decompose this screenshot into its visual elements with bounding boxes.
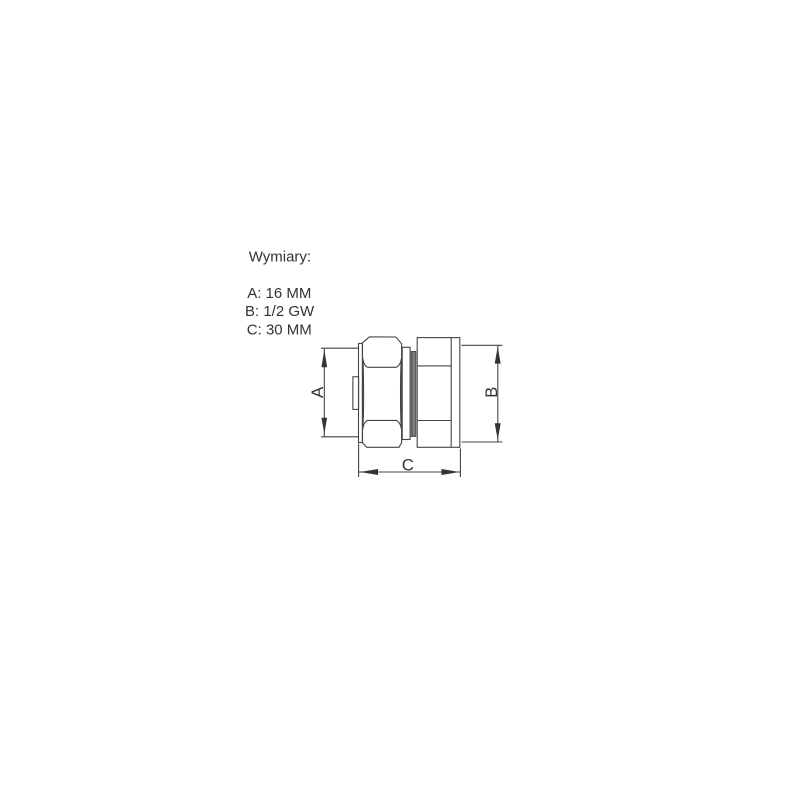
svg-text:B: 1/2 GW: B: 1/2 GW <box>245 303 315 320</box>
svg-text:A: 16 MM: A: 16 MM <box>247 285 311 302</box>
svg-text:C: C <box>402 456 414 475</box>
svg-text:B: B <box>483 387 501 398</box>
svg-text:Wymiary:: Wymiary: <box>249 249 311 266</box>
svg-text:C: 30 MM: C: 30 MM <box>247 321 312 338</box>
svg-text:A: A <box>308 386 327 398</box>
